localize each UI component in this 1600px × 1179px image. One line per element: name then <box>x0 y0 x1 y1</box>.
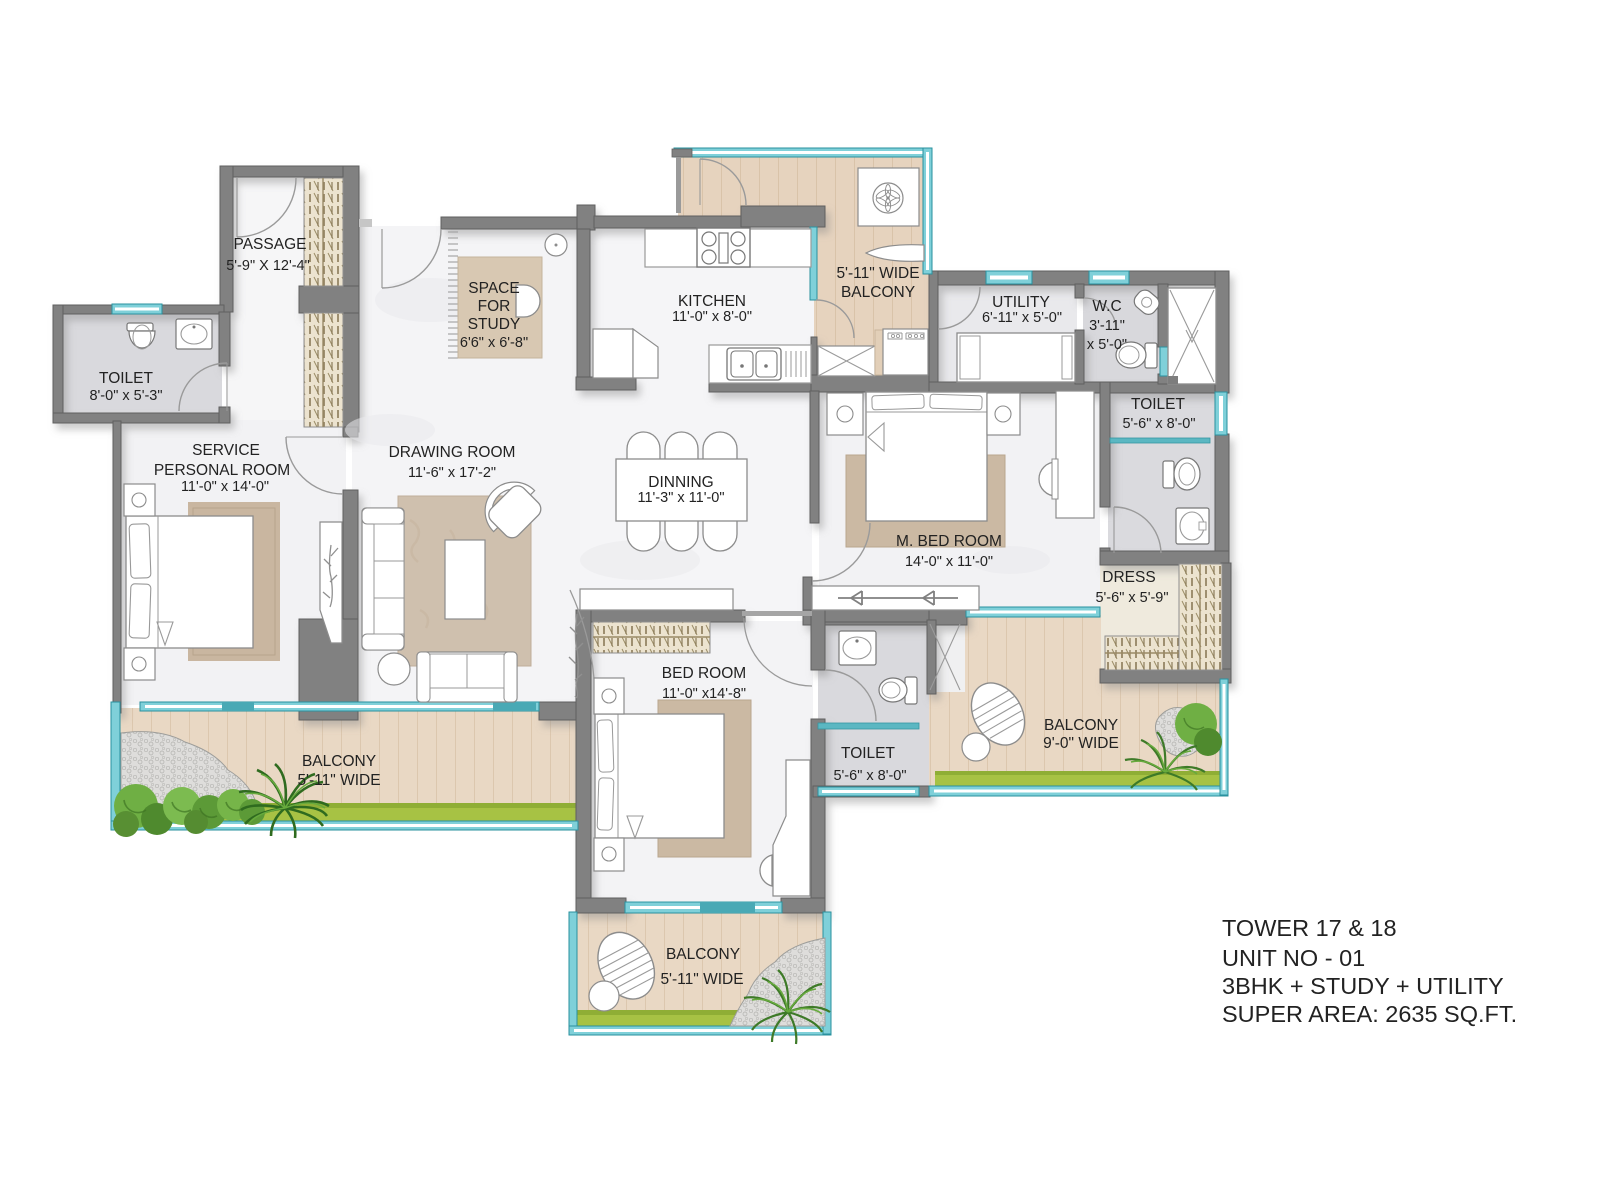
svg-text:FOR: FOR <box>478 298 511 315</box>
svg-text:KITCHEN: KITCHEN <box>678 293 746 310</box>
svg-text:6'6" x 6'-8": 6'6" x 6'-8" <box>460 335 528 351</box>
svg-text:5'-11" WIDE: 5'-11" WIDE <box>836 265 919 282</box>
svg-text:11'-0" x 8'-0": 11'-0" x 8'-0" <box>672 309 752 325</box>
svg-text:3BHK + STUDY + UTILITY: 3BHK + STUDY + UTILITY <box>1222 973 1504 999</box>
svg-text:BALCONY: BALCONY <box>1044 717 1118 734</box>
svg-text:TOWER 17 & 18: TOWER 17 & 18 <box>1222 915 1397 941</box>
svg-text:UTILITY: UTILITY <box>992 294 1050 311</box>
svg-text:SPACE: SPACE <box>468 280 519 297</box>
svg-text:11'-0" x 14'-0": 11'-0" x 14'-0" <box>181 479 269 495</box>
svg-text:BALCONY: BALCONY <box>841 284 915 301</box>
svg-text:11'-6" x 17'-2": 11'-6" x 17'-2" <box>408 465 496 481</box>
svg-text:5'-6" x 8'-0": 5'-6" x 8'-0" <box>1122 416 1195 432</box>
svg-text:M. BED ROOM: M. BED ROOM <box>896 533 1002 550</box>
svg-text:x 5'-0": x 5'-0" <box>1087 337 1127 353</box>
svg-text:11'-3" x 11'-0": 11'-3" x 11'-0" <box>637 490 724 506</box>
svg-text:3'-11": 3'-11" <box>1089 318 1125 334</box>
svg-text:14'-0" x 11'-0": 14'-0" x 11'-0" <box>905 554 993 570</box>
svg-text:DINNING: DINNING <box>648 474 713 491</box>
svg-text:SERVICE: SERVICE <box>192 442 260 459</box>
svg-text:11'-0" x14'-8": 11'-0" x14'-8" <box>662 686 746 702</box>
svg-text:5'-6" x 8'-0": 5'-6" x 8'-0" <box>833 768 906 784</box>
svg-text:TOILET: TOILET <box>99 370 154 387</box>
svg-text:BED ROOM: BED ROOM <box>662 665 746 682</box>
svg-text:PERSONAL ROOM: PERSONAL ROOM <box>154 462 290 479</box>
svg-text:BALCONY: BALCONY <box>302 753 376 770</box>
svg-text:TOILET: TOILET <box>841 745 896 762</box>
svg-text:5'-6" x 5'-9": 5'-6" x 5'-9" <box>1095 590 1168 606</box>
svg-text:5'-11" WIDE: 5'-11" WIDE <box>660 971 743 988</box>
svg-text:STUDY: STUDY <box>468 316 521 333</box>
svg-text:TOILET: TOILET <box>1131 396 1186 413</box>
svg-text:BALCONY: BALCONY <box>666 946 740 963</box>
svg-text:W.C: W.C <box>1092 298 1121 315</box>
svg-text:6'-11" x 5'-0": 6'-11" x 5'-0" <box>982 310 1062 326</box>
svg-text:5'-9" X 12'-4": 5'-9" X 12'-4" <box>226 258 310 274</box>
svg-text:8'-0" x 5'-3": 8'-0" x 5'-3" <box>89 388 162 404</box>
svg-text:PASSAGE: PASSAGE <box>234 236 307 253</box>
svg-text:UNIT NO - 01: UNIT NO - 01 <box>1222 945 1365 971</box>
svg-text:DRAWING ROOM: DRAWING ROOM <box>389 444 516 461</box>
svg-text:5'-11" WIDE: 5'-11" WIDE <box>297 772 380 789</box>
svg-text:DRESS: DRESS <box>1102 569 1155 586</box>
svg-text:SUPER AREA: 2635 SQ.FT.: SUPER AREA: 2635 SQ.FT. <box>1222 1001 1517 1027</box>
svg-text:9'-0" WIDE: 9'-0" WIDE <box>1043 735 1119 752</box>
